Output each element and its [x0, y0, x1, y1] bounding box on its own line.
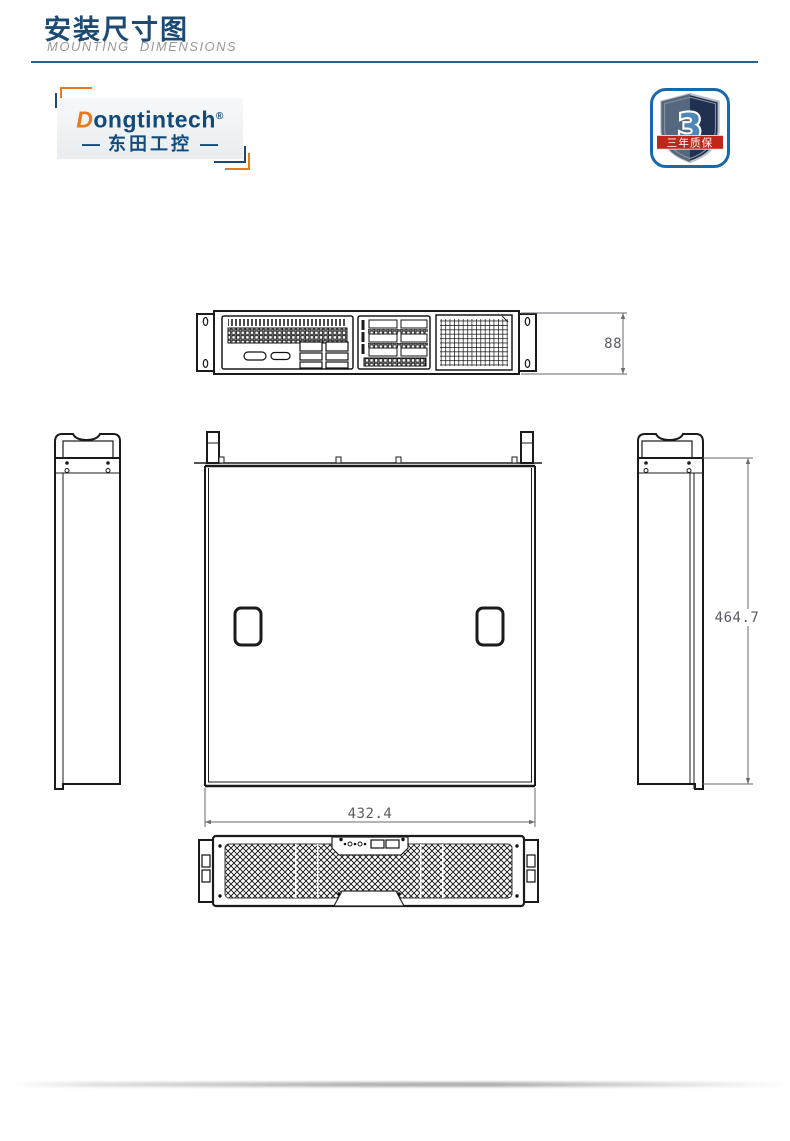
right-side-view-drawing: 464.7: [633, 428, 760, 800]
top-view-drawing: 432.4: [190, 428, 555, 830]
side-panel-outline: [55, 434, 120, 789]
handle-cutout: [235, 608, 261, 645]
front-fan-grille: [436, 315, 512, 370]
left-side-view-drawing: [48, 428, 133, 798]
brand-name-chinese: — 东田工控 —: [57, 133, 243, 155]
dip-row: [368, 329, 428, 334]
bottom-shadow: [0, 1082, 790, 1087]
front-io-section: [222, 316, 353, 369]
page-subtitle: MOUNTING DIMENSIONS: [47, 39, 237, 54]
ear-slot-hole: [203, 318, 207, 326]
handle-recess: [642, 441, 692, 458]
vent-tick-row: [228, 318, 347, 326]
usb-port: [386, 840, 399, 848]
usb-port: [371, 840, 384, 848]
depth-dimension-label: 464.7: [715, 610, 760, 626]
page: 安装尺寸图 MOUNTING DIMENSIONS Dongtintech® —…: [0, 0, 790, 1141]
front-view-drawing: 88: [190, 303, 635, 388]
side-panel-outline: [638, 434, 703, 789]
vent-grid: [228, 328, 347, 343]
width-dimension-label: 432.4: [348, 806, 393, 822]
ear-slot-hole: [525, 318, 529, 326]
ear-slot-hole: [525, 360, 529, 368]
registered-mark: ®: [216, 111, 224, 122]
dip-row: [364, 358, 426, 366]
dsub-connector: [271, 353, 290, 360]
handle-recess: [63, 441, 113, 458]
rear-view-drawing: [195, 833, 545, 913]
warranty-label: 三年质保: [667, 137, 714, 150]
width-dimension: 432.4: [205, 788, 535, 827]
dsub-connector: [244, 352, 266, 360]
front-slot-section: [358, 316, 430, 369]
top-left-ear-tab: [207, 432, 219, 463]
brand-name: Dongtintech®: [57, 105, 243, 132]
bottom-center-plate: [334, 891, 404, 906]
height-dimension-label: 88: [604, 336, 622, 352]
dip-row: [368, 343, 428, 348]
flange-tabs: [219, 457, 517, 463]
brand-logo: Dongtintech® — 东田工控 —: [57, 98, 243, 159]
header-divider: [31, 61, 758, 63]
warranty-badge: 3 3 三年质保: [650, 88, 730, 168]
ear-slot-hole: [203, 360, 207, 368]
brand-initial: D: [76, 107, 93, 133]
handle-cutout: [477, 608, 503, 645]
warranty-shield-icon: 3 3 三年质保: [657, 93, 723, 163]
top-right-ear-tab: [521, 432, 533, 463]
depth-dimension: 464.7: [703, 458, 760, 784]
brand-rest: ongtintech: [93, 107, 216, 133]
